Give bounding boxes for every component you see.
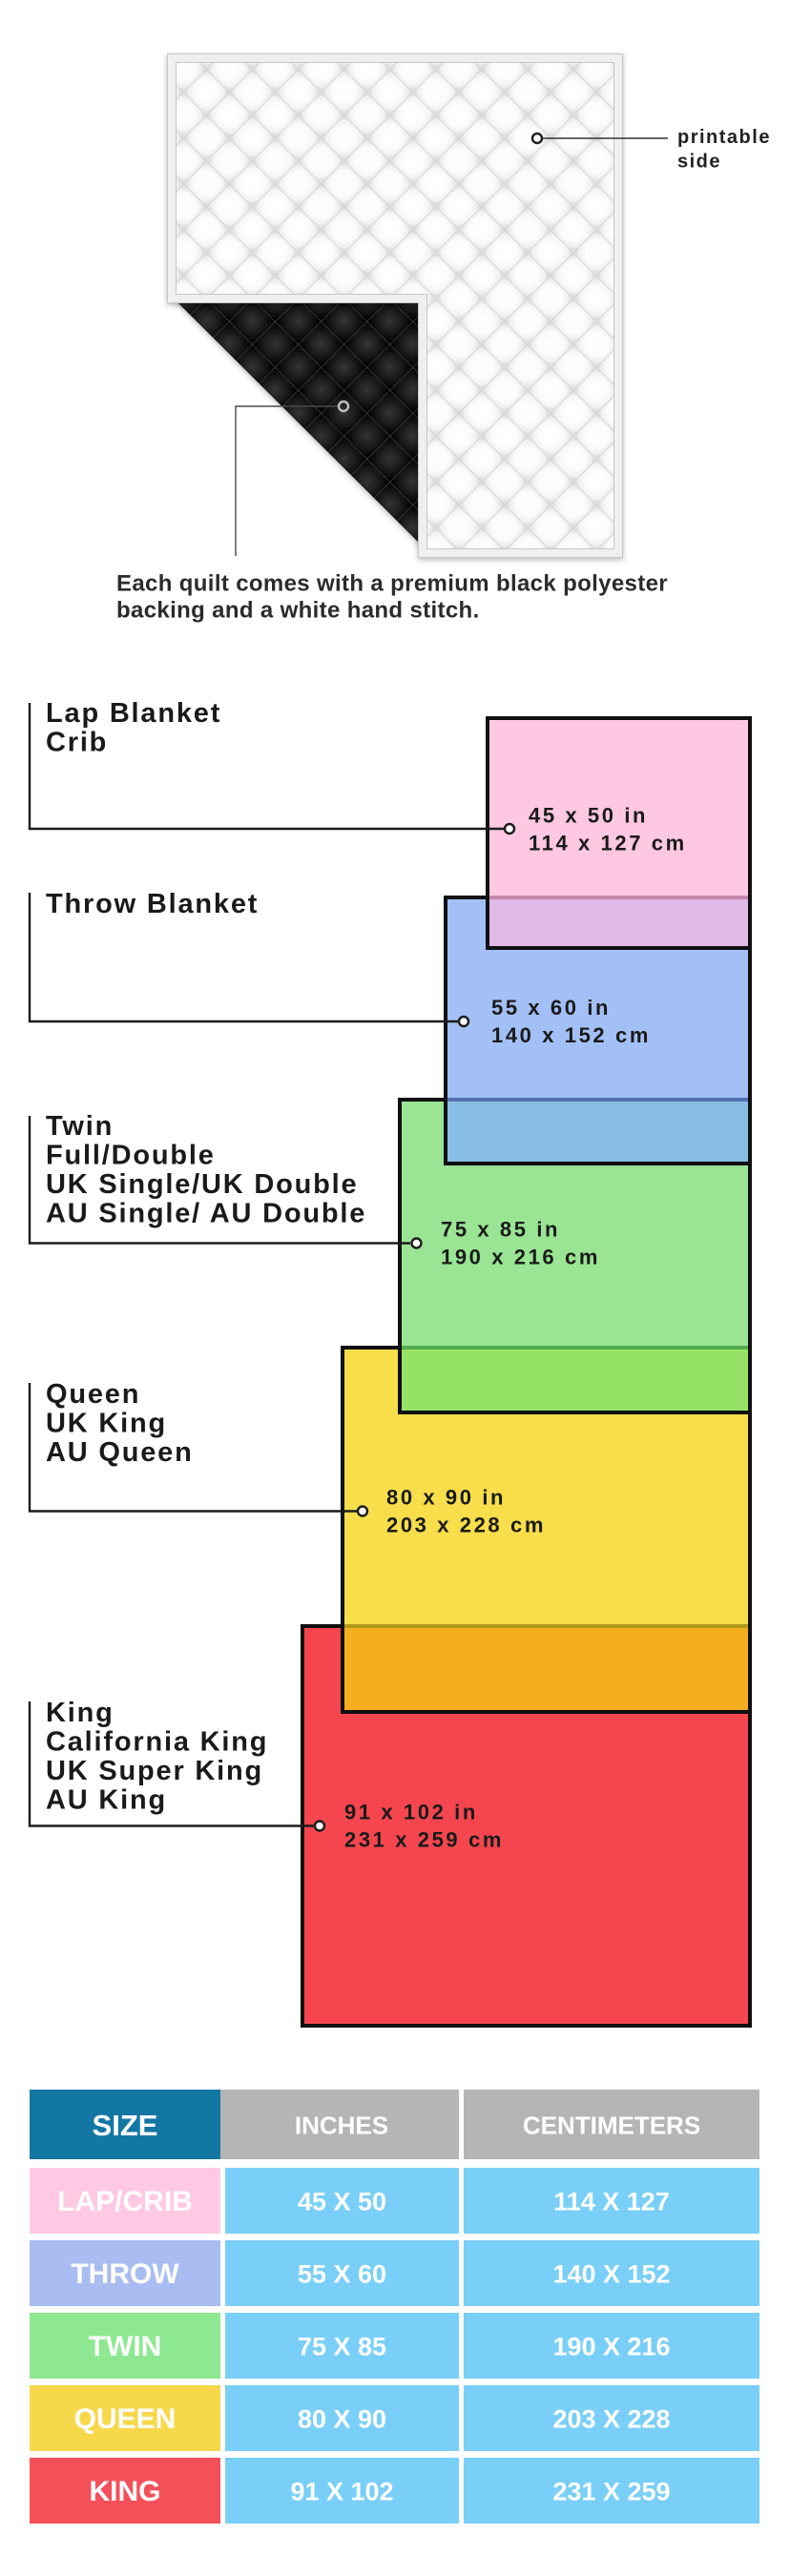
svg-text:UK Super King: UK Super King <box>46 1756 263 1786</box>
svg-text:backing and a white hand stitc: backing and a white hand stitch. <box>116 598 480 624</box>
svg-text:TWIN: TWIN <box>89 2331 162 2362</box>
svg-text:Each quilt comes with a premiu: Each quilt comes with a premium black po… <box>116 571 668 597</box>
svg-text:91 X 102: 91 X 102 <box>290 2478 393 2506</box>
svg-text:Full/Double: Full/Double <box>46 1141 216 1171</box>
svg-text:75 x 85 in: 75 x 85 in <box>441 1218 560 1242</box>
svg-text:King: King <box>46 1698 114 1728</box>
svg-text:190 X 216: 190 X 216 <box>552 2333 670 2361</box>
svg-text:203 x 228 cm: 203 x 228 cm <box>386 1514 546 1537</box>
svg-text:side: side <box>677 152 721 173</box>
svg-text:Throw Blanket: Throw Blanket <box>46 889 259 919</box>
svg-text:Crib: Crib <box>46 728 108 758</box>
svg-text:LAP/CRIB: LAP/CRIB <box>57 2186 193 2217</box>
svg-text:KING: KING <box>90 2476 161 2507</box>
svg-text:California King: California King <box>46 1727 268 1758</box>
svg-text:231 X 259: 231 X 259 <box>552 2478 670 2506</box>
svg-text:190 x 216 cm: 190 x 216 cm <box>441 1246 600 1269</box>
svg-text:Lap Blanket: Lap Blanket <box>46 698 221 729</box>
svg-text:80 X 90: 80 X 90 <box>298 2405 386 2434</box>
svg-text:231 x 259 cm: 231 x 259 cm <box>344 1828 504 1852</box>
svg-text:45 x 50 in: 45 x 50 in <box>529 804 648 828</box>
svg-text:80 x 90 in: 80 x 90 in <box>386 1486 506 1510</box>
svg-text:THROW: THROW <box>71 2258 179 2290</box>
svg-text:45 X 50: 45 X 50 <box>298 2188 386 2216</box>
svg-text:Queen: Queen <box>46 1379 140 1410</box>
svg-text:114 x 127 cm: 114 x 127 cm <box>529 832 687 855</box>
svg-text:140 X 152: 140 X 152 <box>552 2260 670 2289</box>
svg-text:AU Single/ AU Double: AU Single/ AU Double <box>46 1199 366 1229</box>
svg-text:INCHES: INCHES <box>295 2112 388 2140</box>
svg-text:114 X 127: 114 X 127 <box>553 2188 670 2216</box>
svg-text:AU Queen: AU Queen <box>46 1437 194 1468</box>
svg-text:CENTIMETERS: CENTIMETERS <box>523 2112 700 2140</box>
svg-text:55 X 60: 55 X 60 <box>298 2260 386 2289</box>
svg-text:QUEEN: QUEEN <box>74 2403 177 2435</box>
svg-text:SIZE: SIZE <box>93 2109 158 2142</box>
svg-text:75 X 85: 75 X 85 <box>298 2333 386 2361</box>
svg-text:91 x 102 in: 91 x 102 in <box>344 1801 478 1824</box>
svg-text:203 X 228: 203 X 228 <box>552 2405 670 2434</box>
svg-text:UK Single/UK Double: UK Single/UK Double <box>46 1169 358 1200</box>
svg-text:printable: printable <box>677 127 771 148</box>
svg-text:55 x 60 in: 55 x 60 in <box>491 996 611 1020</box>
svg-text:UK King: UK King <box>46 1409 167 1439</box>
svg-text:AU King: AU King <box>46 1785 167 1816</box>
svg-text:Twin: Twin <box>46 1111 114 1142</box>
svg-text:140 x 152 cm: 140 x 152 cm <box>491 1023 651 1047</box>
